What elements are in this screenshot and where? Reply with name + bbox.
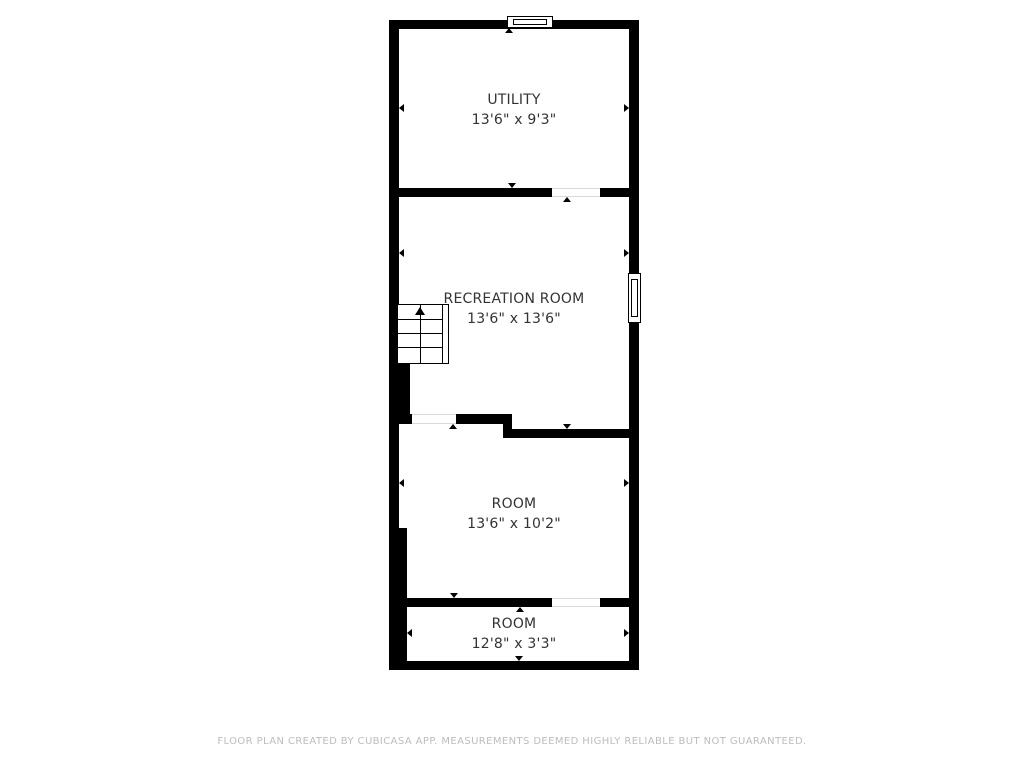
wall-divider1-left [389,188,552,197]
room-name: UTILITY [399,90,629,110]
measure-arrow-icon [624,479,629,487]
room-dimensions: 12'8" x 3'3" [399,634,629,654]
window-pane [513,19,547,25]
window-icon-right [628,273,641,323]
room-name: ROOM [399,494,629,514]
footer-disclaimer: FLOOR PLAN CREATED BY CUBICASA APP. MEAS… [0,736,1024,747]
door-opening-recreation-room [412,414,456,424]
room-label-bottom: ROOM 12'8" x 3'3" [399,614,629,654]
measure-arrow-icon [449,424,457,429]
wall-divider2-left [456,414,503,424]
door-opening-utility-recreation [552,188,600,197]
wall-left-thick-under-stairs [389,364,410,414]
window-icon-top [507,16,553,28]
wall-divider2-stub [389,414,412,424]
door-opening-room-room [552,598,600,607]
wall-divider2-right [503,429,639,438]
room-label-utility: UTILITY 13'6" x 9'3" [399,90,629,130]
room-dimensions: 13'6" x 13'6" [399,309,629,329]
wall-right [629,20,639,670]
stair-tread [398,347,443,348]
room-name: RECREATION ROOM [399,289,629,309]
wall-divider3-right [600,598,639,607]
measure-arrow-icon [563,197,571,202]
measure-arrow-icon [508,183,516,188]
room-dimensions: 13'6" x 10'2" [399,514,629,534]
wall-divider3-left [407,598,552,607]
measure-arrow-icon [505,28,513,33]
measure-arrow-icon [399,249,404,257]
room-name: ROOM [399,614,629,634]
measure-arrow-icon [516,607,524,612]
measure-arrow-icon [563,424,571,429]
floor-plan-page: UTILITY 13'6" x 9'3" RECREATION ROOM 13'… [0,0,1024,768]
measure-arrow-icon [450,593,458,598]
wall-divider1-right [600,188,639,197]
room-label-recreation: RECREATION ROOM 13'6" x 13'6" [399,289,629,329]
measure-arrow-icon [515,656,523,661]
room-dimensions: 13'6" x 9'3" [399,110,629,130]
measure-arrow-icon [399,479,404,487]
measure-arrow-icon [624,249,629,257]
stair-tread [398,333,443,334]
room-label-middle: ROOM 13'6" x 10'2" [399,494,629,534]
wall-bottom [389,661,639,670]
window-pane [631,279,638,317]
